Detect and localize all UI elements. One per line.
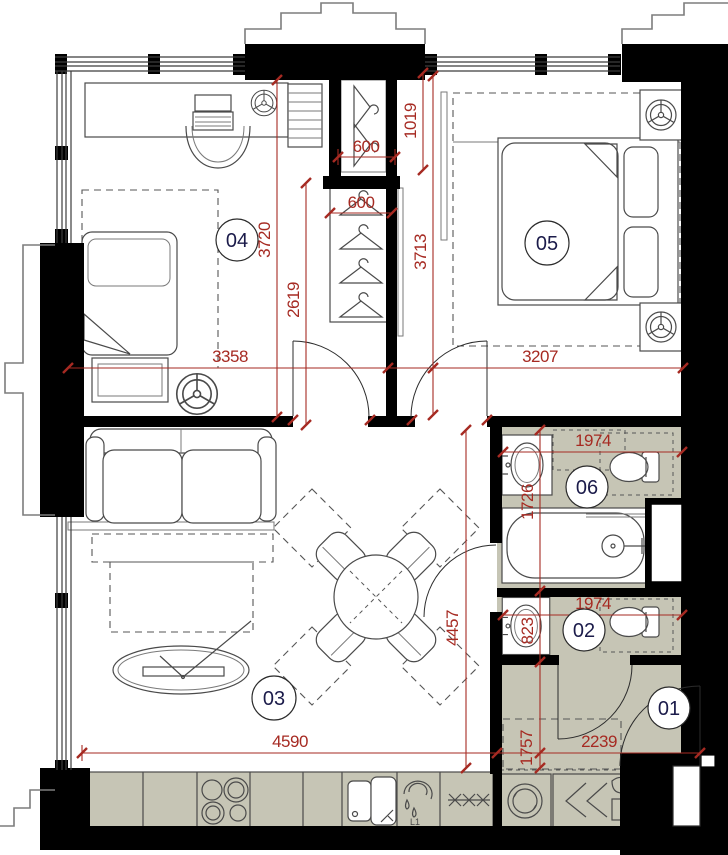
room-label-01: 01 <box>658 698 680 720</box>
double-bed <box>498 138 678 305</box>
dim-bath06-depth: 1726 <box>518 484 537 520</box>
window-band-left-lower <box>57 517 71 770</box>
washing-machine-icon <box>500 774 551 828</box>
dim-wardrobe-width: 600 <box>348 193 375 212</box>
dim-bath06-width: 1974 <box>575 431 611 450</box>
dim-wc02-depth: 823 <box>518 618 537 645</box>
fan-unit-icon <box>177 374 218 415</box>
kitchen-sink-icon <box>348 777 396 825</box>
toilet-icon <box>610 607 659 637</box>
door-bedroom-05 <box>411 341 487 417</box>
bedside-cabinet <box>92 358 168 402</box>
toilet-icon <box>610 452 659 482</box>
sofa <box>86 429 276 523</box>
dim-living-depth: 4457 <box>443 610 462 646</box>
hanger-icon <box>354 86 378 128</box>
laptop-icon <box>193 95 233 130</box>
floor-plan-drawing: L1 <box>0 0 728 855</box>
dim-entry-width: 2239 <box>581 732 617 751</box>
entry-door-leaf <box>673 766 700 826</box>
room-label-05: 05 <box>536 233 558 255</box>
bedroom-05 <box>398 90 682 351</box>
oval-rug-floor-lamp <box>113 621 251 694</box>
sliding-door-track <box>441 92 447 240</box>
dim-wardrobe-run: 2619 <box>284 282 303 318</box>
single-bed <box>82 232 177 355</box>
kitchen-counter-floor <box>70 772 493 828</box>
dim-bedroom05-width: 3207 <box>522 347 558 366</box>
pillow <box>624 227 658 297</box>
door-bedroom-04 <box>293 341 369 417</box>
dining-table <box>334 555 418 639</box>
dim-entry-depth: 1757 <box>517 730 536 766</box>
coffee-table-zone-dashed <box>110 562 253 632</box>
floor-plan-canvas: L1 <box>0 0 728 855</box>
nightstand <box>640 90 682 140</box>
window-band-top-right <box>425 57 620 71</box>
room-label-06: 06 <box>576 477 598 499</box>
room-label-03: 03 <box>263 688 285 710</box>
prep-sink-label: L1 <box>410 817 420 827</box>
dining-set <box>273 489 479 705</box>
service-shaft <box>651 504 682 582</box>
hall-closet <box>341 80 386 172</box>
dim-closet-top-depth: 1019 <box>401 103 420 139</box>
sliding-door-track <box>398 188 403 336</box>
dim-closet-top-width: 600 <box>353 137 380 156</box>
dim-living-width: 4590 <box>272 732 308 751</box>
console-zone-dashed <box>92 534 273 562</box>
nightstand <box>640 303 682 351</box>
pillow <box>624 147 658 217</box>
dim-bedroom04-width: 3358 <box>212 347 248 366</box>
room-label-04: 04 <box>226 230 248 252</box>
dim-bedroom05-depth: 3713 <box>411 234 430 270</box>
shelf-unit <box>288 84 322 147</box>
living-room-03 <box>68 429 479 705</box>
door-jamb <box>701 755 715 767</box>
room-label-02: 02 <box>573 620 595 642</box>
